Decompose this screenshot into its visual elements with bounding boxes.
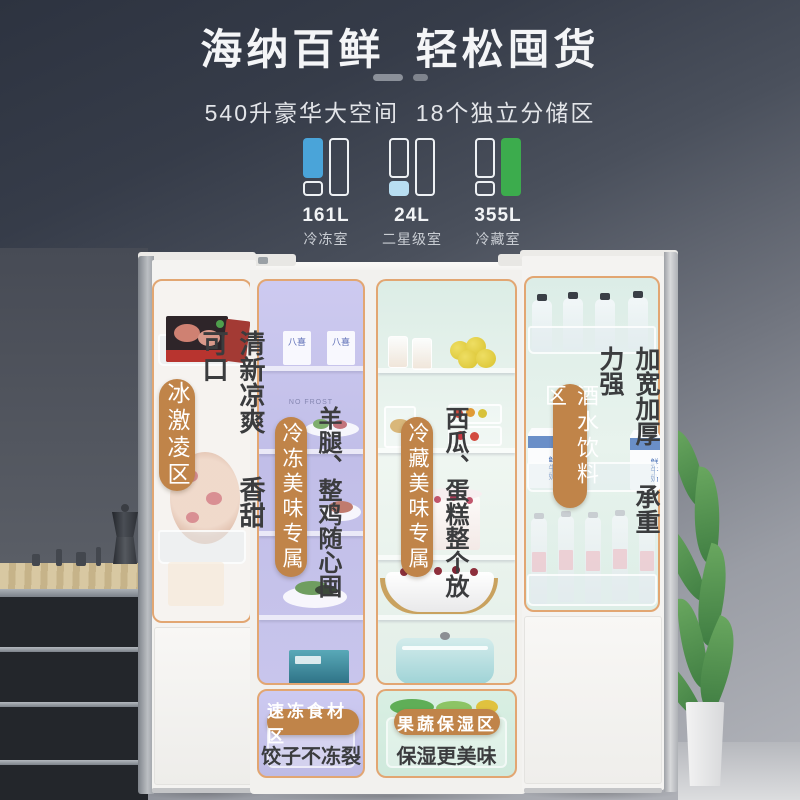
counter-utensil bbox=[96, 547, 101, 566]
plant-pot bbox=[684, 702, 726, 786]
counter-utensil bbox=[76, 552, 86, 566]
bottle-cap bbox=[633, 291, 643, 298]
pot-lid bbox=[402, 646, 488, 650]
bottle-label bbox=[532, 552, 546, 572]
icon-left-bottom bbox=[475, 181, 495, 196]
pot-lid-knob bbox=[440, 632, 450, 640]
capacity-value: 161L bbox=[283, 205, 369, 227]
zone-pill-ice-cream: 冰激凌区 bbox=[159, 379, 195, 491]
freezer-shelf bbox=[259, 615, 363, 620]
ice-cream-pack: 八喜 bbox=[327, 331, 355, 365]
capacity-label: 二星级室 bbox=[369, 229, 455, 249]
hinge-left bbox=[250, 254, 296, 266]
zone-desc-ice-cream: 清新凉爽 香甜可口 bbox=[196, 330, 270, 540]
cabinet-drawer-line bbox=[0, 760, 148, 765]
moka-pot-knob bbox=[121, 504, 129, 512]
zone-desc-drinks: 加宽加厚 承重力强 bbox=[592, 346, 664, 541]
package-logo bbox=[216, 320, 224, 328]
zone-pill-drinks: 酒水饮料区 bbox=[553, 384, 587, 508]
fridge-compartment-icon bbox=[475, 138, 521, 196]
bottle-label bbox=[613, 549, 627, 569]
icon-right-column bbox=[415, 138, 435, 196]
left-door-bottom-edge bbox=[152, 788, 256, 793]
capacity-item-freezer: 161L 冷冻室 bbox=[283, 138, 369, 249]
page-title: 海纳百鲜 轻松囤货 bbox=[0, 16, 800, 77]
bottle-cap bbox=[600, 293, 610, 300]
zone-pill-fridge: 冷藏美味专属 bbox=[401, 417, 433, 577]
fruit bbox=[478, 409, 487, 418]
divider-dash-long bbox=[373, 74, 403, 81]
icon-left-tall bbox=[389, 138, 409, 178]
bottle-label bbox=[586, 551, 600, 571]
capacity-item-two-star: 24L 二星级室 bbox=[369, 138, 455, 249]
capacity-label: 冷冻室 bbox=[283, 229, 369, 249]
ice-cream-brand-label: 八喜 bbox=[288, 337, 306, 347]
bottle-label bbox=[640, 551, 654, 571]
zone-pill-crisper: 果蔬保湿区 bbox=[394, 709, 500, 735]
icon-highlight-left-bottom bbox=[389, 181, 409, 196]
hinge-left-cap bbox=[258, 257, 268, 264]
no-frost-label: NO FROST bbox=[259, 399, 363, 406]
zone-pill-quick-freeze: 速冻食材区 bbox=[267, 709, 359, 735]
door-bin bbox=[527, 574, 657, 606]
icon-left-tall bbox=[475, 138, 495, 178]
fridge-shelf bbox=[378, 368, 515, 373]
ice-cream-pack: 八喜 bbox=[283, 331, 311, 365]
bottle-cap bbox=[537, 294, 547, 301]
icon-right-column bbox=[329, 138, 349, 196]
page-subtitle: 540升豪华大空间 18个独立分储区 bbox=[0, 94, 800, 128]
zone-desc-crisper: 保湿更美味 bbox=[376, 740, 517, 769]
box-label bbox=[295, 656, 321, 664]
right-door-outer-edge bbox=[664, 252, 678, 792]
promo-page: 八喜 八喜 NO FROST bbox=[0, 0, 800, 800]
frozen-package-faint bbox=[168, 562, 224, 606]
glass-jar bbox=[412, 338, 432, 370]
counter-utensil bbox=[56, 549, 62, 566]
bottle-cap bbox=[561, 511, 571, 517]
zone-desc-quick-freeze: 饺子不冻裂 bbox=[257, 740, 365, 769]
ice-cream-brand-label: 八喜 bbox=[332, 337, 350, 347]
counter-utensil bbox=[32, 554, 40, 566]
lemon bbox=[476, 349, 496, 368]
icon-highlight-left-tall bbox=[303, 138, 323, 178]
zone-desc-freezer: 羊腿、整鸡随心囤 bbox=[310, 406, 345, 606]
lemon bbox=[458, 350, 478, 369]
zone-desc-fridge: 西瓜、蛋糕整个放 bbox=[437, 406, 472, 606]
right-door-bottom-edge bbox=[524, 788, 662, 793]
moka-pot-bottom bbox=[113, 537, 137, 564]
capacity-item-fridge: 355L 冷藏室 bbox=[455, 138, 541, 249]
capacity-value: 24L bbox=[369, 205, 455, 227]
bottle-cap bbox=[534, 513, 544, 519]
two-star-compartment-icon bbox=[389, 138, 435, 196]
freezer-compartment-icon bbox=[303, 138, 349, 196]
frozen-food-box bbox=[289, 650, 349, 684]
counter-edge bbox=[0, 589, 148, 597]
divider-dash-short bbox=[413, 74, 428, 81]
right-door-lower-panel bbox=[524, 616, 662, 784]
cabinet-drawer-line bbox=[0, 702, 148, 707]
kitchen-counter bbox=[0, 563, 148, 590]
glass-jar bbox=[388, 336, 408, 368]
teal-casserole-pot bbox=[396, 638, 494, 684]
capacity-icons-row: 161L 冷冻室 24L 二星级室 355L 冷藏室 bbox=[12, 138, 800, 249]
capacity-label: 冷藏室 bbox=[455, 229, 541, 249]
cabinet-drawer-line bbox=[0, 647, 148, 652]
kitchen-cabinet bbox=[0, 597, 148, 800]
fridge-shelf bbox=[378, 615, 515, 620]
bottle-cap bbox=[568, 292, 578, 299]
icon-highlight-right bbox=[501, 138, 521, 196]
title-divider bbox=[0, 74, 800, 81]
capacity-value: 355L bbox=[455, 205, 541, 227]
icon-left-bottom bbox=[303, 181, 323, 196]
bottle-label bbox=[559, 550, 573, 570]
left-door-lower-panel bbox=[154, 627, 254, 785]
freezer-shelf bbox=[259, 366, 363, 371]
zone-pill-freezer: 冷冻美味专属 bbox=[275, 417, 307, 577]
